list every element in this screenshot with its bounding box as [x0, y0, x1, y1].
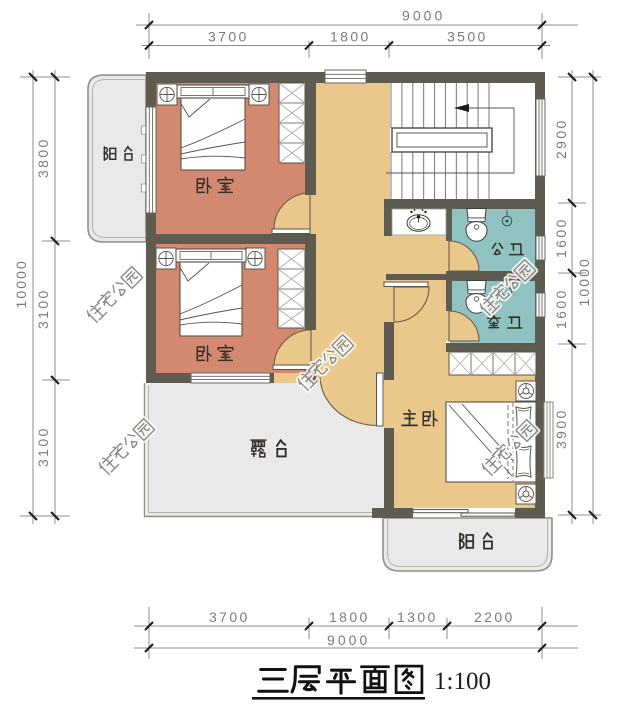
svg-text:10000: 10000 [576, 259, 592, 307]
svg-text:10000: 10000 [13, 261, 29, 309]
svg-text:1:100: 1:100 [434, 668, 491, 695]
